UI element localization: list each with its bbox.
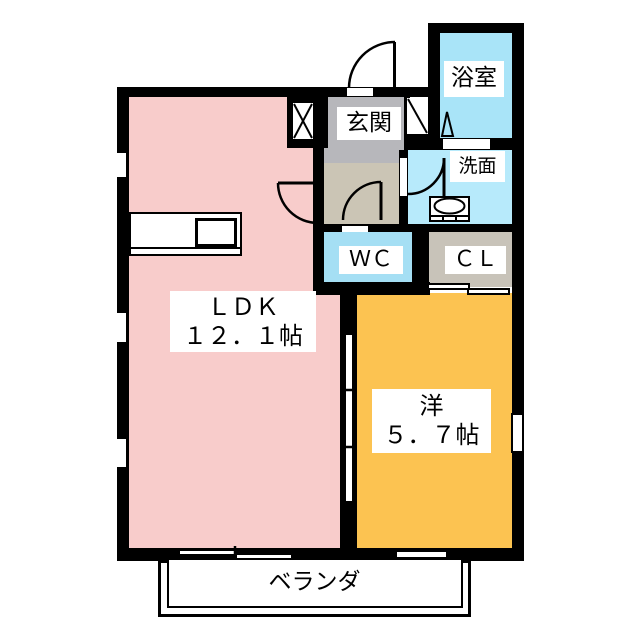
window-left-1 (117, 151, 126, 179)
pillar-box (293, 103, 313, 139)
wall-bathroom-left (428, 23, 440, 150)
window-left-3 (117, 437, 126, 469)
window-left-2 (117, 311, 126, 344)
wall-ldk-hallway (313, 148, 324, 295)
western-room-size: ５．７帖 (384, 421, 480, 450)
wall-bathroom-top (428, 23, 524, 33)
washroom-door-opening (400, 158, 407, 196)
veranda-label: ベランダ (158, 562, 471, 596)
ldk-label: ＬＤＫ １２．１帖 (170, 291, 316, 352)
floor-plan-page: { "plan": { "ldk": { "name_label": "ＬＤＫ"… (0, 0, 640, 640)
room-hallway (324, 163, 399, 232)
ldk-terrace-door-panel-2 (235, 553, 293, 560)
ldk-western-sliding-door (344, 333, 354, 503)
washroom-label: 洗面 (450, 151, 505, 182)
bathroom-door-opening (443, 139, 490, 149)
western-room-name: 洋 (420, 392, 444, 421)
floor-plan: ベランダ 玄関 浴室 洗面 ＷＣ ＣＬ ＬＤＫ １２．１帖 洋 ５．７帖 (0, 0, 640, 640)
bathroom-label: 浴室 (444, 61, 504, 97)
ldk-size: １２．１帖 (183, 322, 303, 351)
wall-under-shaft (404, 134, 440, 150)
ldk-terrace-door-panel-1 (178, 549, 236, 556)
wall-top (117, 87, 430, 97)
kitchen-counter-edge (131, 247, 240, 249)
western-room-label: 洋 ５．７帖 (372, 389, 491, 453)
closet-sliding-door-panel-1 (427, 283, 470, 290)
entrance-door-opening (347, 88, 373, 96)
ldk-name: ＬＤＫ (207, 293, 279, 322)
shaft-box (407, 98, 428, 134)
washbasin (429, 196, 470, 222)
entrance-label: 玄関 (337, 107, 401, 140)
wall-right (512, 140, 524, 561)
toilet-door-opening (342, 226, 368, 232)
entrance-door-swing (349, 42, 395, 88)
closet-label: ＣＬ (445, 246, 506, 274)
window-western-bottom (395, 550, 448, 559)
toilet-label: ＷＣ (339, 246, 403, 274)
kitchen-sink (195, 218, 237, 247)
closet-sliding-door-panel-2 (467, 288, 510, 295)
wall-bathroom-right (512, 23, 524, 150)
window-right (511, 413, 524, 453)
